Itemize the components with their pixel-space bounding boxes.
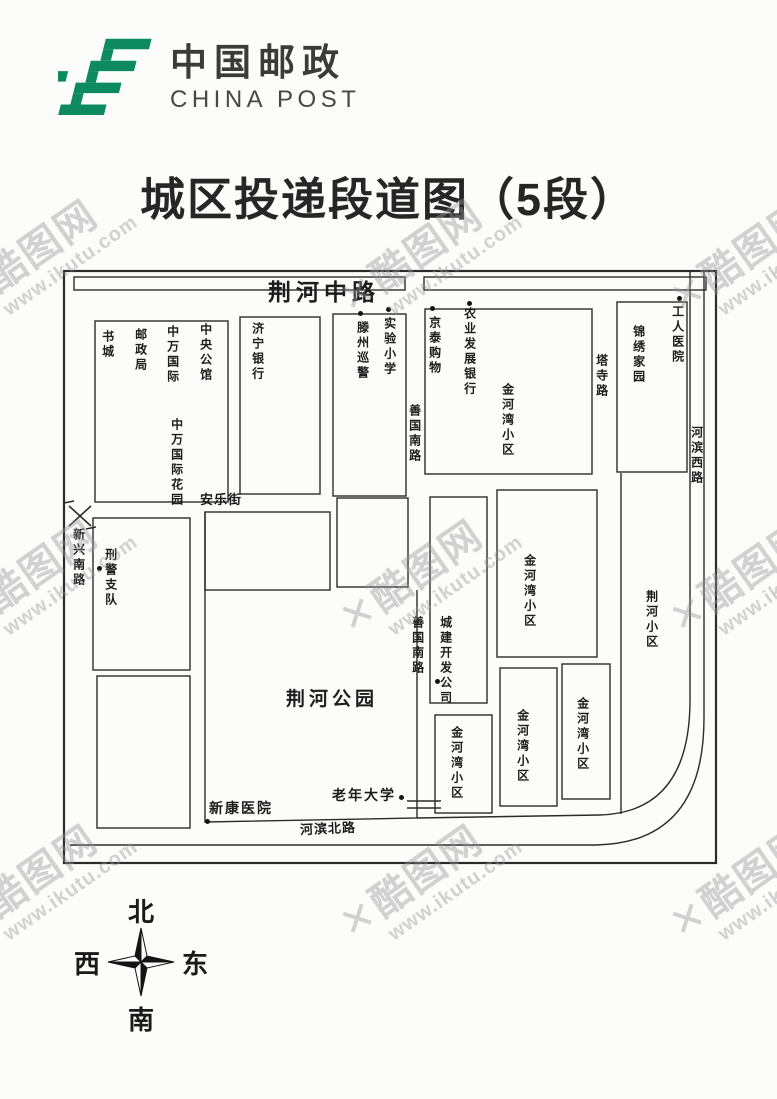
poi-dot	[205, 819, 210, 824]
place-label-zhongwan-garden: 中万国际花园	[170, 418, 183, 508]
place-label-jinghe-xiaoqu: 荆河小区	[645, 590, 658, 650]
place-label-jinhewan-south-3: 金河湾小区	[576, 697, 589, 772]
place-label-chengjian-development: 城建开发公司	[439, 616, 452, 706]
place-label-tengzhou-patrol: 滕州巡警	[356, 321, 369, 381]
place-label-workers-hospital: 工人医院	[671, 305, 684, 365]
road-label-hebin-west: 河滨西路	[690, 426, 703, 486]
poi-dot	[467, 301, 472, 306]
compass-south-label: 南	[128, 1000, 154, 1037]
road-label-xinxing-south: 新兴南路	[72, 528, 85, 588]
poi-dot	[386, 307, 391, 312]
place-label-jinghe-park: 荆河公园	[286, 690, 378, 710]
place-label-central-mansion: 中央公馆	[199, 323, 212, 383]
place-label-book-city: 书城	[101, 330, 114, 360]
place-label-senior-university: 老年大学	[332, 788, 396, 803]
place-label-jingtai-shopping: 京泰购物	[428, 316, 441, 376]
poi-dot	[97, 566, 102, 571]
place-label-experimental-school: 实验小学	[383, 317, 396, 377]
place-label-police-detachment: 刑警支队	[104, 548, 117, 608]
poi-dot	[430, 306, 435, 311]
place-label-zhongwan-international: 中万国际	[166, 325, 179, 385]
compass-east-label: 东	[182, 944, 208, 981]
road-label-shanguo-south-upper: 善国南路	[408, 404, 421, 464]
road-label-anle-street: 安乐街	[200, 493, 242, 507]
place-label-jinxiu-home: 锦绣家园	[632, 325, 645, 385]
place-label-jining-bank: 济宁银行	[251, 322, 264, 382]
road-label-shanguo-south-lower: 善国南路	[411, 616, 424, 676]
place-label-jinhewan-big: 金河湾小区	[501, 383, 514, 458]
road-label-tasi: 塔寺路	[595, 354, 608, 399]
road-label-jinghe-middle: 荆河中路	[268, 280, 380, 304]
place-label-post-office: 邮政局	[134, 328, 147, 373]
poi-dot	[677, 296, 682, 301]
place-label-jinhewan-south-1: 金河湾小区	[450, 726, 463, 801]
road-label-hebin-north: 河滨北路	[300, 821, 357, 837]
compass-star-icon	[104, 922, 178, 1002]
place-label-jinhewan-mid: 金河湾小区	[523, 554, 536, 629]
place-label-jinhewan-south-2: 金河湾小区	[516, 709, 529, 784]
poi-dot	[358, 311, 363, 316]
poi-dot	[399, 795, 404, 800]
compass-west-label: 西	[74, 944, 100, 981]
compass-rose: 北 西 东 南	[60, 892, 230, 1052]
delivery-route-map-page: 中国邮政 CHINA POST 城区投递段道图（5段）	[0, 0, 777, 1099]
poi-dot	[435, 679, 440, 684]
level-crossing-icon	[64, 501, 96, 529]
place-label-xinkang-hospital: 新康医院	[209, 801, 273, 816]
place-label-agricultural-development-bank: 农业发展银行	[463, 307, 476, 397]
